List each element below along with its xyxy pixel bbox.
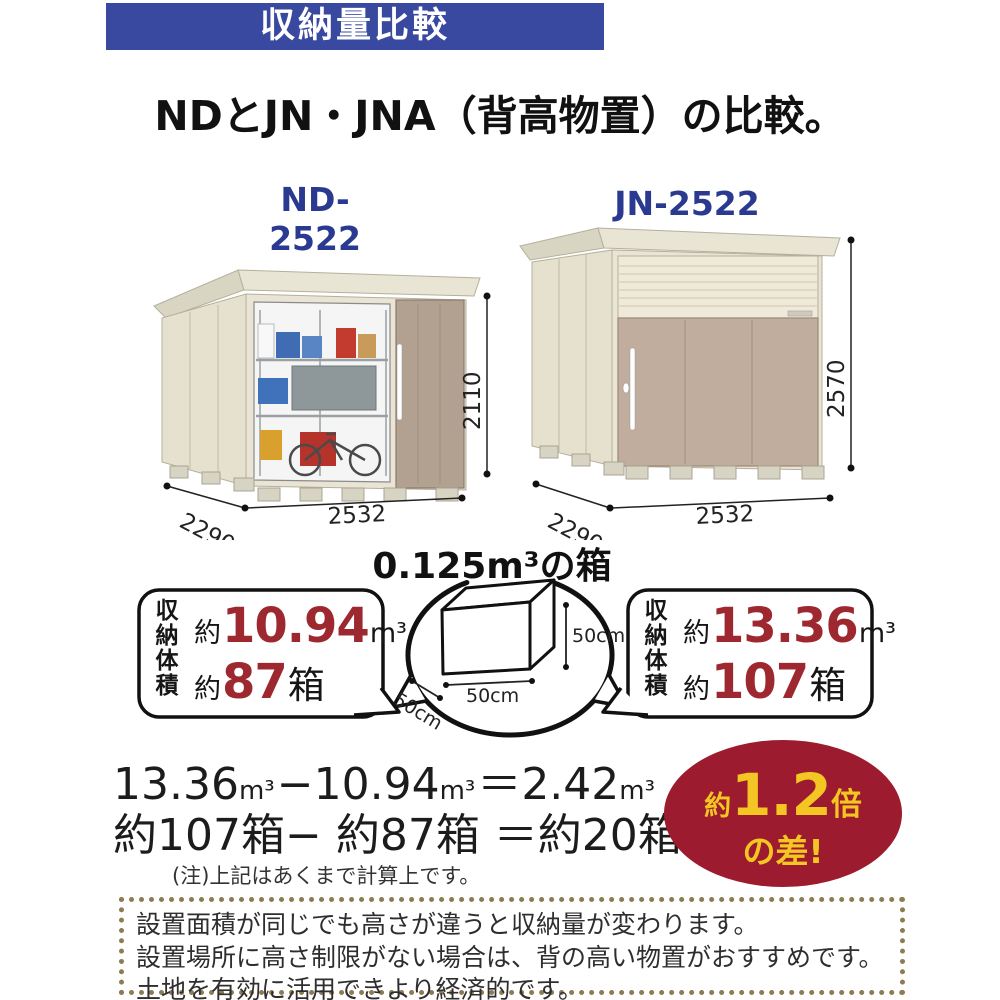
nd-item-gray-board	[292, 366, 376, 410]
nd-item-yellow-bag	[260, 430, 282, 460]
nd-item-jug	[258, 324, 274, 358]
capacity-label-left: 収納体積	[150, 598, 178, 710]
badge-line1: 約 1.2 倍	[704, 761, 862, 829]
model-label-jn: JN-2522	[612, 184, 762, 223]
footer-note-box: 設置面積が同じでも高さが違うと収納量が変わります。 設置場所に高さ制限がない場合…	[119, 897, 905, 995]
footer-line-1: 設置面積が同じでも高さが違うと収納量が変わります。	[136, 909, 888, 942]
nd-left-wall	[162, 294, 246, 486]
nd-interior	[254, 302, 390, 482]
jn-doors	[618, 318, 818, 466]
capacity-callout-right: 収納体積 約 13.36 m³ 約 107 箱	[639, 598, 867, 710]
badge-prefix: 約	[704, 784, 731, 823]
boxes-formula: 約107箱− 約87箱 ＝約20箱	[113, 799, 682, 863]
formula-note: (注)上記はあくまで計算上です。	[172, 860, 480, 890]
boxes-unit: 箱	[288, 655, 325, 709]
badge-suffix: 倍	[831, 779, 862, 824]
infographic-canvas: 収納量比較 NDとJN・JNA（背高物置）の比較。 ND-2522 JN-252…	[0, 0, 1000, 1000]
boxes-unit: 箱	[809, 655, 846, 709]
jn-dim-height: 2570	[824, 359, 850, 418]
jn-shutter-band	[618, 256, 818, 318]
approx-label: 約	[683, 611, 710, 650]
nd-dim-height: 2110	[460, 371, 486, 430]
difference-badge: 約 1.2 倍 の差!	[664, 740, 902, 887]
boxes-value: 87	[222, 654, 287, 710]
jn-door-knob	[623, 383, 629, 393]
shed-nd-illustration: 2290 2532 2110	[154, 270, 491, 540]
approx-label: 約	[194, 667, 221, 706]
cube-width-label: 50cm	[466, 685, 519, 707]
header-banner: 収納量比較	[106, 3, 604, 50]
capacity-callout-left: 収納体積 約 10.94 m³ 約 87 箱	[150, 598, 376, 710]
nd-item-blue-box	[276, 332, 300, 358]
footer-line-2: 設置場所に高さ制限がない場合は、背の高い物置がおすすめです。	[136, 942, 888, 975]
volume-value: 13.36	[711, 598, 858, 654]
header-banner-label: 収納量比較	[260, 6, 450, 46]
badge-line2: の差!	[742, 825, 823, 873]
nd-item-blue-bin	[258, 378, 288, 404]
footer-line-3: 土地を有効に活用できより経済的です。	[136, 974, 888, 1000]
approx-label: 約	[683, 667, 710, 706]
jn-left-wall	[532, 250, 612, 466]
cube-height-label: 50cm	[572, 625, 625, 647]
page-title: NDとJN・JNA（背高物置）の比較。	[0, 82, 1000, 142]
capacity-volume-row: 約 13.36 m³	[683, 598, 896, 654]
badge-value: 1.2	[731, 761, 831, 829]
capacity-boxes-row: 約 87 箱	[194, 654, 407, 710]
volume-value: 10.94	[222, 598, 369, 654]
nd-item-red-box	[336, 328, 356, 358]
nd-door	[396, 300, 464, 488]
capacity-boxes-row: 約 107 箱	[683, 654, 896, 710]
volume-unit: m³	[370, 618, 407, 649]
shed-illustrations: 2290 2532 2110	[140, 220, 880, 540]
capacity-label-right: 収納体積	[639, 598, 667, 710]
volume-unit: m³	[859, 618, 896, 649]
boxes-value: 107	[711, 654, 808, 710]
nd-door-handle	[397, 344, 402, 420]
capacity-volume-row: 約 10.94 m³	[194, 598, 407, 654]
approx-label: 約	[194, 611, 221, 650]
jn-door-handle	[630, 348, 635, 430]
nd-roof-fascia	[238, 270, 480, 296]
cube-drawing	[442, 580, 554, 674]
shed-jn-illustration: 2290 2532 2570	[520, 228, 855, 540]
